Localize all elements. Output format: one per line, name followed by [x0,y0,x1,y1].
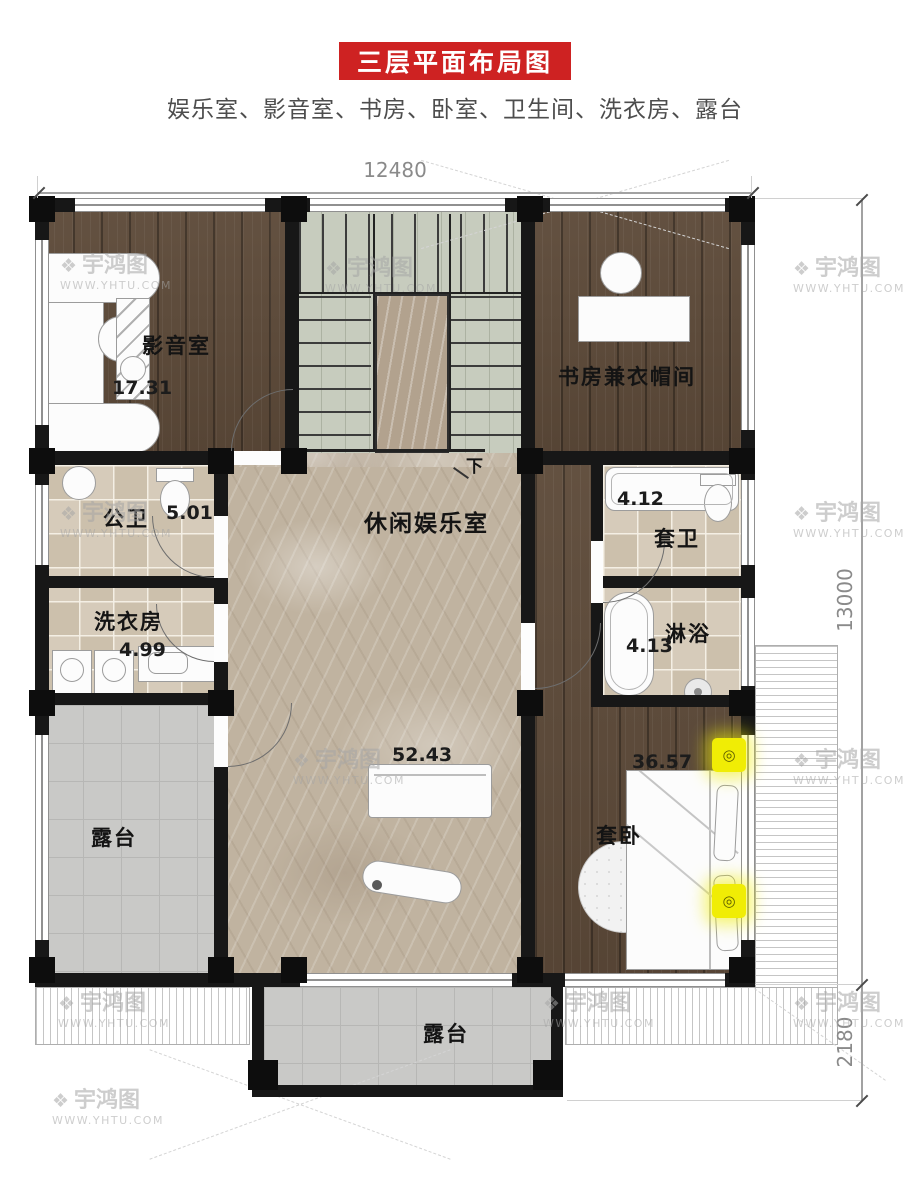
page-subtitle: 娱乐室、影音室、书房、卧室、卫生间、洗衣房、露台 [0,90,910,124]
area-label-laundry: 4.99 [119,639,166,661]
dimension-line-right-main [861,200,863,985]
roof-hatch-right [755,645,838,1007]
pillar [533,1060,563,1090]
room-label-laundry: 洗衣房 [94,606,163,636]
window [741,480,755,565]
wall [521,198,535,465]
stair-railing [299,449,485,452]
pillar [29,448,55,474]
page-title: 三层平面布局图 [357,43,553,79]
window [550,198,725,212]
sink [62,466,96,500]
watermark-url: WWW.YHTU.COM [793,527,905,540]
sofa-arm-top [48,253,160,303]
terrace-bottom-floor [264,987,551,1087]
hall-table [368,764,492,818]
pillar [29,957,55,983]
pillar [208,957,234,983]
pillow [713,784,739,861]
wall-lamp: ◎ [712,738,746,772]
stair-flight-left [299,296,371,451]
dimension-extension [567,1100,863,1101]
stair-down-label: 下 [466,452,483,477]
bed [626,770,746,970]
area-label-ensuite-bath: 4.12 [617,488,664,510]
area-label-shower: 4.13 [626,635,673,657]
watermark-logo-icon: ❖ [793,258,810,280]
watermark-logo-icon: ❖ [793,503,810,525]
dimension-line-right-lower [861,985,863,1101]
hall-table-line [374,774,486,776]
room-label-master-bedroom: 套卧 [596,820,642,850]
washing-machine-drum [102,658,126,682]
area-label-hall: 52.43 [392,744,452,766]
wall [252,1085,563,1097]
desk-chair [600,252,642,294]
dimension-value-right-main: 13000 [833,555,857,645]
watermark-brand-text: 宇鸿图 [815,503,881,525]
dimension-value-right-lower: 2180 [833,997,857,1087]
window [741,598,755,686]
window [75,198,265,212]
watermark-brand-text: 宇鸿图 [74,1090,140,1112]
dimension-extension [755,198,863,199]
stair-landing [375,294,449,453]
room-label-ensuite-bath: 套卫 [654,523,700,553]
watermark-brand-text: 宇鸿图 [815,258,881,280]
pillar [729,196,755,222]
area-label-master-bedroom: 36.57 [632,751,692,773]
stair-flight-top [299,214,521,292]
watermark-url: WWW.YHTU.COM [793,282,905,295]
wall [521,451,535,987]
stair-railing [299,292,521,294]
window [310,198,505,212]
watermark: ❖宇鸿图WWW.YHTU.COM [52,1090,164,1127]
stair-railing [449,214,451,451]
pillar [729,690,755,716]
pillar [729,957,755,983]
room-label-study: 书房兼衣帽间 [558,361,696,391]
title-banner: 三层平面布局图 [339,42,571,80]
washing-machine-drum [60,658,84,682]
wall [521,451,755,465]
treadmill-knob [372,880,382,890]
dimension-value-top: 12480 [338,158,452,182]
room-label-cinema: 影音室 [142,330,211,360]
pillar [281,957,307,983]
window [741,245,755,430]
door-opening [521,623,535,693]
watermark-url: WWW.YHTU.COM [52,1114,164,1127]
desk [578,296,690,342]
sofa-arm-bottom [48,403,160,453]
room-label-hall: 休闲娱乐室 [364,504,489,538]
dimension-line-top [38,192,752,194]
pillar [517,448,543,474]
wall [35,693,228,705]
window [35,240,49,425]
watermark: ❖宇鸿图WWW.YHTU.COM [793,258,905,295]
watermark-logo-icon: ❖ [52,1090,69,1112]
stair-railing [373,214,375,451]
window [35,485,49,565]
pillar [208,448,234,474]
window [565,973,725,987]
pillar [29,196,55,222]
door-opening [214,516,228,578]
roof-hatch-bottom-right [565,987,838,1045]
window [35,735,49,940]
sliding-door-balcony [300,973,512,987]
bed-blanket-line [709,771,711,970]
pillar [281,448,307,474]
area-label-cinema: 17.31 [112,377,172,399]
floor-plan-page: 三层平面布局图 娱乐室、影音室、书房、卧室、卫生间、洗衣房、露台 下 [0,0,910,1190]
pillar [248,1060,278,1090]
wall [591,695,741,707]
dimension-extension [755,984,863,985]
room-label-terrace-left: 露台 [91,822,137,852]
door-opening [591,541,603,603]
pillar [517,196,543,222]
door-opening [214,604,228,662]
area-label-public-bath: 5.01 [166,502,213,524]
pillar [29,690,55,716]
pillar [281,196,307,222]
pillar [517,957,543,983]
watermark-brand: ❖宇鸿图 [793,503,905,525]
pillar [517,690,543,716]
stair-flight-right [451,296,521,451]
pillar [729,448,755,474]
wall-lamp: ◎ [712,884,746,918]
watermark-brand: ❖宇鸿图 [52,1090,164,1112]
room-label-public-bath: 公卫 [103,503,149,533]
watermark: ❖宇鸿图WWW.YHTU.COM [793,503,905,540]
room-label-terrace-bottom: 露台 [423,1018,469,1048]
watermark-brand: ❖宇鸿图 [793,258,905,280]
roof-hatch-bottom-left [35,987,250,1045]
wall [35,576,228,588]
